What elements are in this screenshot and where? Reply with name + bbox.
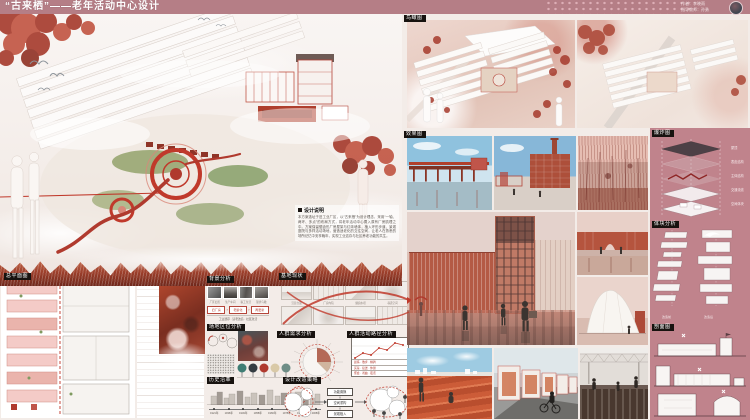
render-terraces xyxy=(407,348,492,419)
timeline-year: 1936年 xyxy=(222,406,237,415)
background-photo xyxy=(207,286,222,299)
location-figure-ground-map xyxy=(207,354,235,374)
render-waterfront-detail xyxy=(407,136,492,210)
avatar xyxy=(729,1,743,15)
photo-caption: 厂区旧照 xyxy=(207,300,223,304)
label-site-plan: 总平面图 xyxy=(4,273,31,280)
timeline-year: 1949年 xyxy=(236,406,251,415)
photo-collage xyxy=(159,280,205,354)
massing-before-caption: 改造前 xyxy=(662,315,671,319)
timeline-year: 1921年 xyxy=(207,406,222,415)
label-history: 历史沿革 xyxy=(207,377,234,384)
red-swoosh-overlay xyxy=(281,280,411,330)
label-exploded: 爆炸图 xyxy=(652,130,674,137)
site-plan-svg xyxy=(1,274,135,418)
blossom-texture xyxy=(545,0,695,14)
aerial2-illustration xyxy=(577,20,748,128)
layer-label: 屋顶 xyxy=(731,146,749,150)
poster-title: “古来栖”——老年活动中心设计 xyxy=(5,0,160,14)
render-waterfront xyxy=(407,136,492,210)
render-tent-detail xyxy=(577,277,648,345)
background-photos xyxy=(207,286,269,299)
massing-after-caption: 改造后 xyxy=(704,315,713,319)
label-needs: 人群需求分析 xyxy=(277,331,315,338)
plaza-figures xyxy=(407,212,575,345)
arrow-icon: › xyxy=(226,307,227,313)
photo-caption: 现状鸟瞰 xyxy=(254,300,270,304)
path-chart-table: 晨练 · 散步 · 棋牌 买菜 · 接送 · 休憩 聚会 · 戏曲 · 夜话 xyxy=(352,359,408,376)
flow-chip: 再更新 xyxy=(251,306,269,314)
credits: 作者：李晓雨 指导教师：孙勇 xyxy=(681,1,727,13)
strategy-box: 空间重构 xyxy=(327,399,353,407)
lollipop-trees-diagram xyxy=(236,362,292,378)
background-photo-captions: 厂区旧照 生产车间 职工生活 现状鸟瞰 xyxy=(207,300,269,304)
design-note-body: 本方案选址于旧工业厂区，以“古来栖”为设计理念，采用“一轴、两环、多点”的布局方… xyxy=(298,215,396,239)
layer-label: 交通流线 xyxy=(731,188,749,192)
strategy-box: 功能置换 xyxy=(327,388,353,396)
layer-label: 表皮结构 xyxy=(731,160,749,164)
render-reeds xyxy=(578,136,648,210)
label-renders: 效果图 xyxy=(404,131,426,138)
render-reeds-detail xyxy=(578,136,648,210)
design-poster: “古来栖”——老年活动中心设计 作者：李晓雨 指导教师：孙勇 xyxy=(0,0,750,420)
background-flowchart: 旧厂房› 老龄化› 再更新 xyxy=(207,306,269,314)
background-caption: 工业遗存 · 适老改造 · 社区激活 xyxy=(207,315,269,321)
layer-label: 主体结构 xyxy=(731,174,749,178)
aerial-render-2 xyxy=(577,20,748,128)
header-bar: “古来栖”——老年活动中心设计 作者：李晓雨 指导教师：孙勇 xyxy=(0,0,750,14)
design-note-title: 设计说明 xyxy=(298,207,396,214)
terrace-figures xyxy=(407,348,492,419)
render-brick-building xyxy=(494,136,576,210)
label-location: 场地区位分析 xyxy=(207,324,245,331)
layer-label: 空间体块 xyxy=(731,202,749,206)
background-photo xyxy=(254,286,269,299)
render-tent-pavilion xyxy=(577,277,648,345)
design-note: 设计说明 本方案选址于旧工业厂区，以“古来栖”为设计理念，采用“一轴、两环、多点… xyxy=(295,205,399,241)
label-site-status: 基地现状 xyxy=(279,273,306,280)
aerial1-illustration xyxy=(407,20,575,128)
exploded-axon-diagram xyxy=(652,137,730,219)
background-photo xyxy=(223,286,238,299)
label-background: 背景分析 xyxy=(207,276,234,283)
location-collage xyxy=(238,331,268,361)
location-circle-diagrams xyxy=(207,332,237,354)
person-silhouettes-left xyxy=(11,152,39,258)
activity-path-chart: 晨练 · 散步 · 棋牌 买菜 · 接送 · 休憩 聚会 · 戏曲 · 夜话 xyxy=(351,337,409,377)
label-strategy: 设计改造策略 xyxy=(283,377,321,384)
render-interior-hall xyxy=(580,348,648,419)
label-massing: 体块分析 xyxy=(652,221,679,228)
photo-caption: 生产车间 xyxy=(223,300,239,304)
arcade-detail xyxy=(494,348,578,419)
advisor-line: 指导教师：孙勇 xyxy=(681,7,727,13)
truss-interior-detail xyxy=(580,348,648,419)
label-sections: 剖面图 xyxy=(652,324,674,331)
render-pool-court xyxy=(577,212,648,275)
label-activity-path: 人群活动路径分析 xyxy=(347,331,396,338)
background-photo xyxy=(239,286,254,299)
photo-caption: 职工生活 xyxy=(238,300,254,304)
flow-chip: 老龄化 xyxy=(229,306,247,314)
strategy-box: 景观植入 xyxy=(327,410,353,418)
render-brick-detail xyxy=(494,136,576,210)
timeline-year: 1958年 xyxy=(251,406,266,415)
render-main-plaza xyxy=(407,212,575,345)
flow-chip: 旧厂房 xyxy=(207,306,225,314)
aerial-render-1 xyxy=(407,20,575,128)
render-street-arcade xyxy=(494,348,578,419)
section-drawings xyxy=(652,330,748,418)
fog-overlay xyxy=(60,246,360,272)
label-bird-view: 鸟瞰图 xyxy=(404,15,426,22)
render-pool-detail xyxy=(577,212,648,275)
massing-diagram xyxy=(652,228,748,314)
timeline-year: 1966年 xyxy=(265,406,280,415)
site-plan-drawing xyxy=(1,274,135,418)
arrow-icon: › xyxy=(248,307,249,313)
table-row: 聚会 · 戏曲 · 夜话 xyxy=(352,370,408,376)
